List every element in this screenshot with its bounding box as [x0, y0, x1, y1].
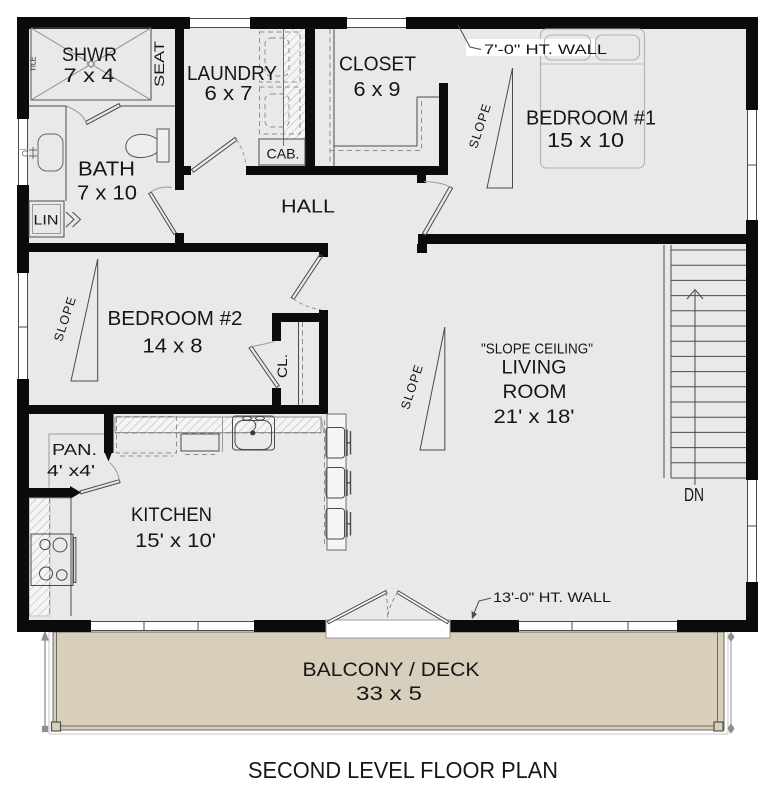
- svg-text:KITCHEN: KITCHEN: [131, 505, 212, 526]
- svg-text:"SLOPE CEILING": "SLOPE CEILING": [481, 341, 593, 358]
- svg-text:14 x 8: 14 x 8: [143, 336, 203, 358]
- svg-text:7 x 10: 7 x 10: [77, 183, 137, 205]
- svg-text:7'-0" HT. WALL: 7'-0" HT. WALL: [484, 42, 607, 57]
- svg-text:LIN: LIN: [34, 212, 59, 228]
- svg-text:7 x 4: 7 x 4: [64, 66, 116, 87]
- svg-text:15' x 10': 15' x 10': [135, 531, 216, 552]
- svg-text:BATH: BATH: [78, 159, 135, 181]
- svg-text:4' x4': 4' x4': [47, 463, 95, 480]
- svg-text:6 x 7: 6 x 7: [205, 83, 253, 105]
- svg-text:13'-0" HT. WALL: 13'-0" HT. WALL: [493, 590, 611, 605]
- svg-text:21' x 18': 21' x 18': [494, 407, 575, 428]
- svg-text:ROOM: ROOM: [503, 382, 567, 403]
- svg-text:SECOND LEVEL FLOOR PLAN: SECOND LEVEL FLOOR PLAN: [248, 757, 558, 783]
- svg-text:BALCONY / DECK: BALCONY / DECK: [303, 659, 480, 681]
- svg-text:SHWR: SHWR: [62, 45, 117, 66]
- svg-text:DN: DN: [684, 485, 704, 505]
- svg-text:CAB.: CAB.: [267, 146, 300, 162]
- svg-text:6 x 9: 6 x 9: [354, 78, 401, 101]
- svg-text:SEAT: SEAT: [151, 40, 167, 87]
- svg-text:CL.: CL.: [275, 354, 290, 378]
- svg-text:HALL: HALL: [281, 196, 335, 217]
- svg-text:TILE: TILE: [31, 56, 38, 71]
- svg-text:33 x 5: 33 x 5: [356, 683, 422, 705]
- svg-text:BEDROOM #2: BEDROOM #2: [108, 308, 243, 330]
- svg-text:BEDROOM #1: BEDROOM #1: [526, 108, 656, 130]
- svg-text:CLOSET: CLOSET: [339, 53, 416, 76]
- svg-text:LAUNDRY: LAUNDRY: [187, 63, 277, 85]
- svg-text:15 x 10: 15 x 10: [547, 130, 624, 152]
- svg-text:LIVING: LIVING: [502, 358, 567, 379]
- svg-text:PAN.: PAN.: [52, 442, 97, 459]
